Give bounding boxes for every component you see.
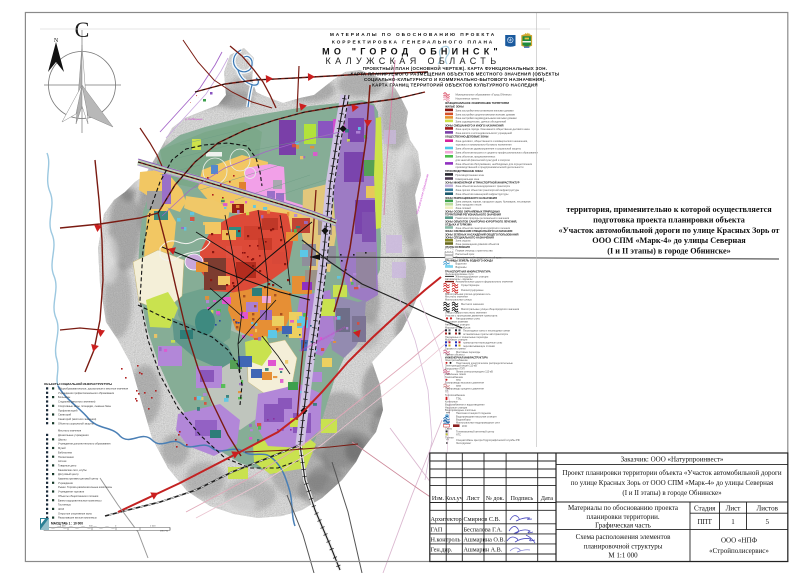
svg-text:Водоемы: Водоемы [456,265,467,269]
svg-text:Банно-оздоровительные комплекс: Банно-оздоровительные комплексы [58,498,102,502]
svg-text:Реконструируемые: Реконструируемые [461,288,484,292]
svg-text:Товарные депо: Товарные депо [58,464,77,468]
svg-text:Учреждения торговли: Учреждения торговли [58,490,85,494]
svg-text:Планировочный «град расчетный: Планировочный «град расчетный срок» [456,255,504,259]
svg-text:Архитектор: Архитектор [431,516,462,523]
svg-text:СОЦИАЛЬНО-КУЛЬТУРНОГО И КОММУН: СОЦИАЛЬНО-КУЛЬТУРНОГО И КОММУНАЛЬНО-БЫТО… [364,77,546,82]
svg-text:д. Кабицыно: д. Кабицыно [185,117,203,121]
svg-text:ОБЩЕСТВЕННО-ДЕЛОВЫЕ ЗОНЫ: ОБЩЕСТВЕННО-ДЕЛОВЫЕ ЗОНЫ [445,135,489,139]
svg-text:Кол.уч: Кол.уч [445,495,463,502]
svg-text:Зона жилого и исследовательско: Зона жилого и исследовательского учрежде… [456,131,513,135]
svg-text:ТЕРРИТОРИЙ РЕГИОНАЛЬНОГО ЗНАЧЕ: ТЕРРИТОРИЙ РЕГИОНАЛЬНОГО ЗНАЧЕНИЯ [445,213,501,217]
svg-text:Проект планировки территории о: Проект планировки территории объекта «Уч… [562,469,781,477]
svg-text:Заказчик: ООО «Натурпроинвест»: Заказчик: ООО «Натурпроинвест» [621,456,724,464]
svg-text:Коммунальная зона: Коммунальная зона [456,177,480,181]
svg-text:Газопроводы высокого давления: Газопроводы высокого давления [445,381,484,385]
svg-text:Зона объектов здравоохранения: Зона объектов здравоохранения и социальн… [456,146,522,150]
svg-text:ОТДЫХА И ТУРИЗМА: ОТДЫХА И ТУРИЗМА [445,223,472,227]
svg-text:№ док.: № док. [486,495,505,502]
svg-text:Изм.: Изм. [432,495,445,502]
svg-text:МАСШТАБ 1 : 10 000: МАСШТАБ 1 : 10 000 [51,522,83,526]
svg-text:ППТ: ППТ [698,518,713,526]
svg-text:Существующие: Существующие [461,283,480,287]
svg-text:Зона объектов инженерной инфра: Зона объектов инженерной инфраструктуры [456,192,509,196]
svg-text:по улице Красных Зорь от ООО С: по улице Красных Зорь от ООО СПМ «Марк-4… [571,479,774,487]
svg-text:С: С [75,17,90,42]
svg-text:планировочной структуры: планировочной структуры [584,543,663,551]
svg-text:Смирнов С.В.: Смирнов С.В. [464,516,501,523]
svg-text:(I и II этапы) в городе Обнинс: (I и II этапы) в городе Обнинске» [607,247,730,256]
svg-text:Местного значения: Местного значения [58,429,82,433]
svg-text:Музей: Музей [58,446,66,450]
svg-text:Связь: Связь [445,427,453,431]
svg-text:Объекты общественного питания: Объекты общественного питания [58,494,99,498]
svg-text:планировки территории.: планировки территории. [586,513,659,521]
svg-text:Производственная зона: Производственная зона [456,173,485,177]
svg-text:Учреждения дополнительного обр: Учреждения дополнительного образования [58,442,111,446]
svg-text:Рынки. Торгово-развлекательные: Рынки. Торгово-развлекательные комплексы [58,485,112,489]
svg-text:«Участок автомобильной дороги: «Участок автомобильной дороги по улице К… [559,226,780,235]
svg-text:Насосная станция II подъема: Насосная станция II подъема [456,411,491,415]
svg-text:Банковские сети, клубы: Банковские сети, клубы [58,468,87,472]
svg-text:Поликлиники: Поликлиники [58,455,74,459]
svg-text:Лесгидромет: Лесгидромет [456,441,472,445]
svg-text:Больницы: Больницы [58,395,70,399]
svg-text:Спортивные залы, площадки, лыж: Спортивные залы, площадки, лыжные базы [58,404,111,408]
svg-text:Зона объектов обслуживания, не: Зона объектов обслуживания, необходимых … [456,162,533,166]
svg-text:Зона застройки среднеэтажными: Зона застройки среднеэтажными жилыми дом… [456,112,516,116]
svg-text:Теплоснабжение: Теплоснабжение [445,393,466,397]
svg-text:Зона застройки индивидуальными: Зона застройки индивидуальными жилыми до… [456,116,518,120]
svg-text:Зона пляжей: Зона пляжей [456,206,472,210]
svg-text:Маршруты автобусов: Маршруты автобусов [445,325,471,329]
svg-text:Ген.дир.: Ген.дир. [431,547,453,554]
svg-text:Схема расположения элементов: Схема расположения элементов [576,533,672,541]
svg-text:1 000: 1 000 [60,526,66,528]
svg-text:Ашмарина О.В.: Ашмарина О.В. [464,537,506,544]
svg-text:Населенные пункты: Населенные пункты [456,97,480,101]
svg-text:Дата: Дата [541,495,554,502]
svg-text:КАРТА ГРАНИЦ ТЕРРИТОРИЙ ОБЪЕКТ: КАРТА ГРАНИЦ ТЕРРИТОРИЙ ОБЪЕКТОВ КУЛЬТУР… [372,83,538,88]
svg-text:КАРТА ПЛАНИРУЕМОГО РАЗМЕЩЕНИЯ: КАРТА ПЛАНИРУЕМОГО РАЗМЕЩЕНИЯ ОБЪЕКТОВ М… [351,72,560,77]
svg-text:Газопроводы среднего давления: Газопроводы среднего давления [445,387,484,391]
svg-text:Раскопавшие жилые комплексы: Раскопавшие жилые комплексы [58,516,97,520]
svg-text:Материалы по обоснованию проек: Материалы по обоснованию проекта [568,504,679,512]
svg-text:Первая очередь строительства: Первая очередь строительства [456,249,494,253]
svg-text:5: 5 [765,518,769,526]
svg-text:КАЛУЖСКАЯ ОБЛАСТЬ: КАЛУЖСКАЯ ОБЛАСТЬ [325,56,500,66]
svg-text:ГАП: ГАП [431,527,443,534]
svg-text:Зона прочих объектов транспорт: Зона прочих объектов транспортной инфрас… [456,188,520,192]
svg-text:ПРОЕКТНЫЙ ПЛАН (ОСНОВНОЙ ЧЕРТЕ: ПРОЕКТНЫЙ ПЛАН (ОСНОВНОЙ ЧЕРТЕЖ). КАРТА … [363,66,548,71]
svg-text:Зона застройки многоэтажными ж: Зона застройки многоэтажными жилыми дома… [456,108,515,112]
svg-text:1: 1 [731,518,735,526]
svg-text:Зона городских лесов: Зона городских лесов [456,203,482,207]
svg-text:ПРОИЗВОДСТВЕННЫЕ ЗОНЫ: ПРОИЗВОДСТВЕННЫЕ ЗОНЫ [445,169,483,173]
svg-text:Зона делового, общественного и: Зона делового, общественного и коммерчес… [456,139,529,143]
svg-text:Расчетный срок: Расчетный срок [456,252,476,256]
svg-text:Н.контроль: Н.контроль [431,537,461,544]
svg-text:N: N [54,38,59,44]
svg-text:для занятий физической культур: для занятий физической культурой и спорт… [456,158,510,162]
svg-text:производственной и предпринима: производственной и предпринимательской д… [456,165,525,169]
svg-text:Графическая часть: Графическая часть [595,522,651,530]
svg-text:территория, применительно к ко: территория, применительно к которой осущ… [566,205,772,214]
svg-text:КОС: КОС [462,424,467,428]
svg-text:ООО СПМ «Марк-4» до улицы Севе: ООО СПМ «Марк-4» до улицы Северная [592,236,746,245]
svg-text:подготовка проекта планировки: подготовка проекта планировки объекта [593,216,745,225]
svg-text:Стадионы (местного значения): Стадионы (местного значения) [58,400,95,404]
svg-text:Профилакторий: Профилакторий [58,408,78,412]
svg-text:Листов: Листов [757,505,779,513]
svg-text:Беспалова Г.А.: Беспалова Г.А. [464,527,504,534]
svg-text:Библиотеки: Библиотеки [58,450,73,454]
svg-text:Санаторий (местного значения): Санаторий (местного значения) [58,417,96,421]
svg-text:Зона объектов, предназначенных: Зона объектов, предназначенных [456,155,497,159]
svg-text:перехватывающие стоянки: перехватывающие стоянки [463,345,496,348]
svg-text:Прочие: Прочие [445,435,454,439]
svg-text:АТС: АТС [456,433,461,437]
svg-text:Магистральные улицы: Магистральные улицы [445,298,472,302]
svg-text:Стадия: Стадия [694,505,716,513]
svg-text:Открытые спортивные залы: Открытые спортивные залы [58,511,92,515]
svg-text:ГРАНИЦЫ ЗЕМЕЛЬ ВОДНОГО ФОНДА: ГРАНИЦЫ ЗЕМЕЛЬ ВОДНОГО ФОНДА [445,259,493,263]
svg-text:МО "ГОРОД ОБНИНСК": МО "ГОРОД ОБНИНСК" [322,47,502,57]
svg-text:Зона объектов высшего и средне: Зона объектов высшего и среднего професс… [456,151,539,155]
svg-text:Общеобразовательные, дошкольны: Общеобразовательные, дошкольные и местны… [58,387,129,391]
svg-text:Учреждения профессионального о: Учреждения профессионального образования [58,391,115,395]
svg-text:ООО «НПФ: ООО «НПФ [721,537,758,545]
svg-text:ЖИЛЫЕ ЗОНЫ: ЖИЛЫЕ ЗОНЫ [445,104,464,108]
svg-text:Аптеки: Аптеки [58,459,67,463]
svg-text:(I и II этапы) в городе Обнинс: (I и II этапы) в городе Обнинске» [622,489,722,497]
svg-text:Местного значения: Местного значения [461,302,484,306]
svg-text:ЗОНЫ ИНЖЕНЕРНОЙ И ТРАНСПОРТНОЙ: ЗОНЫ ИНЖЕНЕРНОЙ И ТРАНСПОРТНОЙ ИНФРАСТРУ… [445,181,520,185]
svg-text:Зона объектов железнодорожного: Зона объектов железнодорожного транспорт… [456,184,511,188]
svg-text:ЗОНЫ РЕКРЕАЦИОННОГО НАЗНАЧЕНИЯ: ЗОНЫ РЕКРЕАЦИОННОГО НАЗНАЧЕНИЯ [445,196,497,200]
svg-text:Водотоки: Водотоки [456,261,468,265]
svg-text:Магистральные улицы общегородс: Магистральные улицы общегородского значе… [461,307,520,311]
svg-text:Зона центра города. Смешанного: Зона центра города. Смешанного обществен… [456,127,531,131]
svg-text:М 1:1 000: М 1:1 000 [608,552,638,560]
svg-text:Зона скверов, парков, городски: Зона скверов, парков, городских садов, б… [456,199,532,203]
svg-text:ЖОЗ: ЖОЗ [58,507,64,511]
svg-text:Санаторий: Санаторий [58,413,72,417]
svg-text:Муниципальное образование «Гор: Муниципальное образование «Город Обнинск… [456,93,513,97]
svg-text:2 000: 2 000 [150,526,156,528]
svg-text:ОБЪЕКТЫ СОЦИАЛЬНОЙ ИНФРАСТРУКТ: ОБЪЕКТЫ СОЦИАЛЬНОЙ ИНФРАСТРУКТУРЫ [44,382,112,386]
svg-text:ТП: ТП [445,390,449,394]
svg-text:ФУНКЦИОНАЛЬНОЕ ЗОНИРОВАНИЕ ТЕР: ФУНКЦИОНАЛЬНОЕ ЗОНИРОВАНИЕ ТЕРРИТОРИИ [445,101,509,105]
svg-text:Гостиницы: Гостиницы [58,503,71,507]
svg-text:Учреждения: Учреждения [58,481,73,485]
svg-text:МЕТРЫ: МЕТРЫ [160,531,168,533]
svg-text:Зона садоводческих, дачных объ: Зона садоводческих, дачных объединений [456,119,507,123]
svg-text:Ашмарин А.В.: Ашмарин А.В. [464,547,503,554]
svg-text:Объекты социальной защиты: Объекты социальной защиты [58,421,94,425]
svg-text:МАТЕРИАЛЫ ПО ОБОСНОВАНИЮ ПРОЕК: МАТЕРИАЛЫ ПО ОБОСНОВАНИЮ ПРОЕКТА [330,32,496,38]
svg-text:«Стройполисервис»: «Стройполисервис» [709,547,769,555]
svg-text:ЗОНЫ СМЕШАННОГО И ИНОГО НАЗНАЧ: ЗОНЫ СМЕШАННОГО И ИНОГО НАЗНАЧЕНИЯ [445,123,504,127]
svg-text:КОРРЕКТИРОВКА ГЕНЕРАЛЬНОГО ПЛА: КОРРЕКТИРОВКА ГЕНЕРАЛЬНОГО ПЛАНА [332,40,494,46]
svg-text:Досуговый центр: Досуговый центр [58,472,79,476]
svg-text:Лист: Лист [726,505,741,513]
svg-text:ЭТАПЫ ОСВОЕНИЯ: ЭТАПЫ ОСВОЕНИЯ [445,245,470,249]
svg-text:Телевизионный антенный центр: Телевизионный антенный центр [456,430,495,434]
svg-text:торгового и коммунально-бытово: торгового и коммунально-бытового назначе… [456,143,513,147]
svg-text:Подпись: Подпись [511,495,534,502]
svg-text:Административно-деловой центр: Административно-деловой центр [58,477,99,481]
svg-text:Дошкольные учреждения: Дошкольные учреждения [58,433,89,437]
svg-text:Лист: Лист [467,495,480,502]
svg-text:Школы: Школы [58,437,66,441]
